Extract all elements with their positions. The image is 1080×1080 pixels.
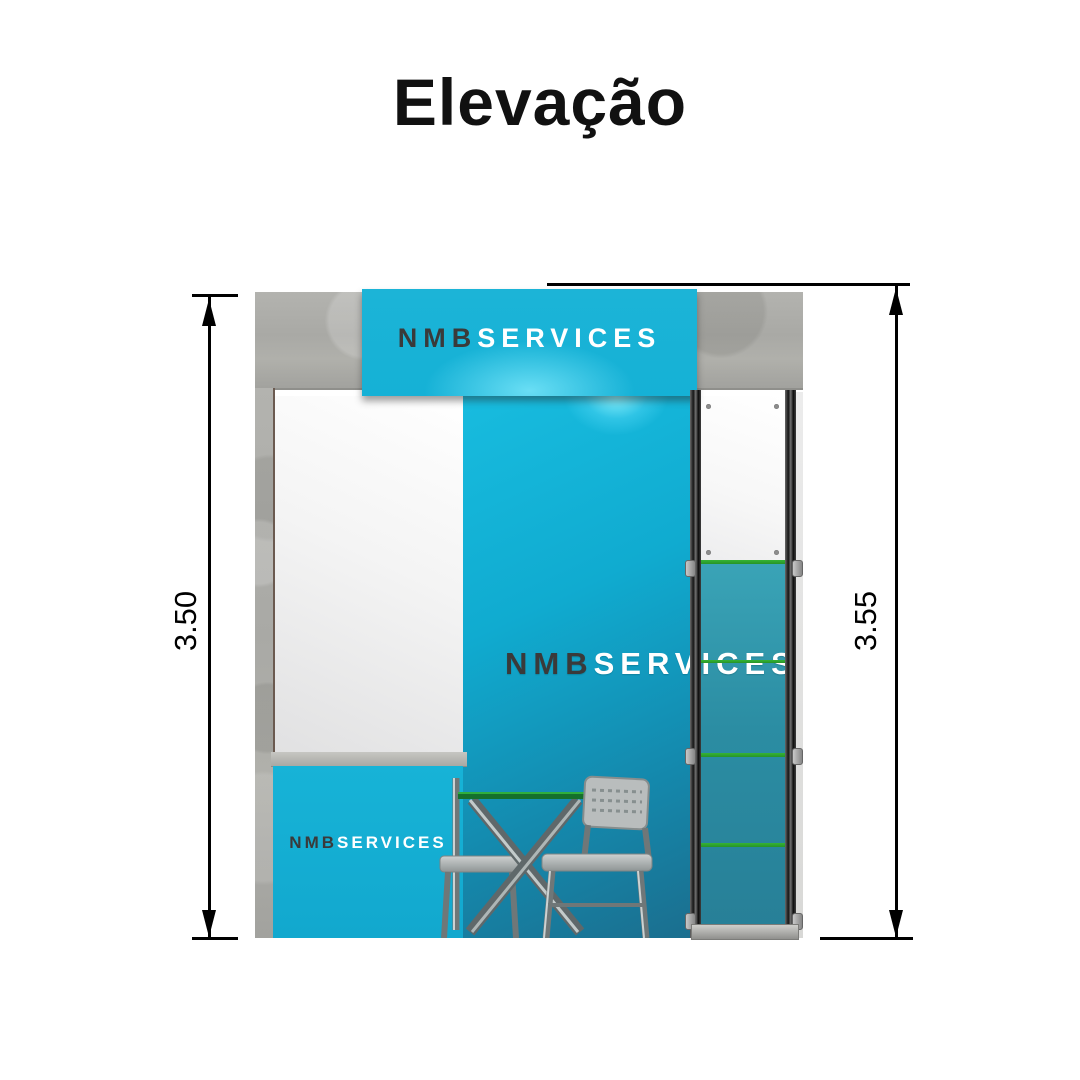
dimension-extension-line — [547, 283, 910, 286]
screw-icon — [706, 550, 711, 555]
header-banner: NMBSERVICES — [362, 289, 697, 396]
logo-nmb-text: NMB — [505, 646, 594, 681]
dimension-label-left: 3.50 — [168, 576, 204, 666]
tower-rail-left — [690, 390, 701, 938]
dimension-line — [208, 296, 211, 939]
dimension-tick-bottom — [192, 937, 238, 940]
wall-logo: NMBSERVICES — [505, 646, 805, 682]
tower-header-panel — [700, 396, 785, 562]
shelf-connector — [792, 560, 803, 577]
counter-logo: NMBSERVICES — [273, 833, 463, 853]
tower-base — [691, 924, 799, 940]
shelf-connector — [685, 560, 696, 577]
elevation-drawing-page: Elevação NMBSERVICES NMBSERVICES — [0, 0, 1080, 1080]
logo-services-text: SERVICES — [477, 323, 661, 353]
dim-arrow-up-icon — [889, 288, 903, 315]
dim-arrow-up-icon — [202, 299, 216, 326]
dimension-tick-bottom — [820, 937, 913, 940]
page-title: Elevação — [0, 64, 1080, 140]
tower-rail-right — [785, 390, 796, 938]
counter-top — [271, 752, 467, 767]
shelf-line — [700, 660, 785, 663]
counter-logo-text: NMBSERVICES — [289, 833, 446, 852]
screw-icon — [774, 550, 779, 555]
shelf-line — [700, 843, 785, 847]
screw-icon — [774, 404, 779, 409]
logo-nmb-text: NMB — [398, 323, 478, 353]
logo-nmb-text: NMB — [289, 833, 337, 852]
logo-services-text: SERVICES — [337, 833, 447, 852]
shelf-connector — [792, 748, 803, 765]
furniture-illustration — [438, 770, 668, 938]
dimension-line — [895, 285, 898, 939]
back-wall-white-panel — [275, 396, 463, 752]
dimension-label-right: 3.55 — [848, 576, 884, 666]
screw-icon — [706, 404, 711, 409]
dimension-tick-top — [192, 294, 238, 297]
dim-arrow-down-icon — [202, 910, 216, 937]
banner-logo: NMBSERVICES — [398, 323, 662, 354]
left-concrete-column — [255, 388, 275, 938]
shelf-connector — [685, 748, 696, 765]
shelf-line — [700, 560, 785, 564]
tower-glass-panel — [700, 560, 785, 935]
dim-arrow-down-icon — [889, 910, 903, 937]
shelf-line — [700, 753, 785, 757]
spotlight-glow — [463, 394, 695, 574]
